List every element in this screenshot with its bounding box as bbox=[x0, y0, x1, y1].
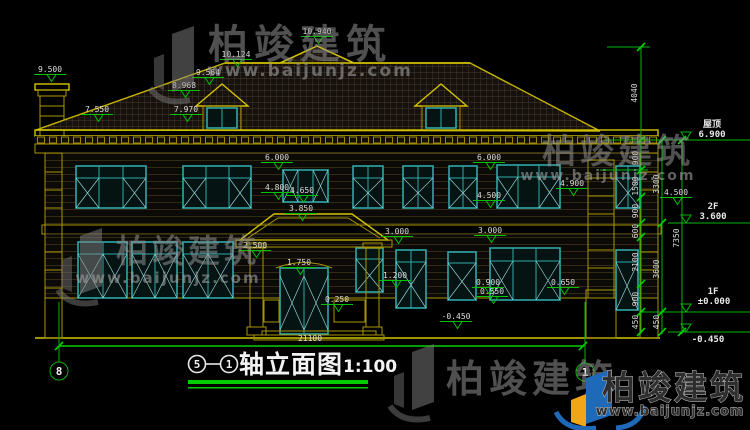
brand-text-bottom-right: 柏竣建筑 bbox=[602, 368, 746, 407]
elev-door-top: 1.750 bbox=[287, 258, 311, 267]
elev-4650: 4.650 bbox=[290, 186, 314, 195]
elev-eave-left: 7.550 bbox=[85, 105, 109, 114]
watermark-url-left: www.baijunjz.com bbox=[75, 269, 260, 287]
dim-600: 600 bbox=[631, 224, 640, 239]
elev-0900: 0.900 bbox=[476, 278, 500, 287]
window-1f-f bbox=[448, 252, 476, 300]
elev-6000-right: 6.000 bbox=[477, 153, 501, 162]
dim-total-width: 21100 bbox=[298, 334, 322, 343]
elev-3000-b: 3.000 bbox=[478, 226, 502, 235]
level-1f-value: ±0.000 bbox=[698, 297, 731, 307]
dim-4040: 4040 bbox=[630, 83, 639, 102]
elevation-marker bbox=[660, 198, 692, 205]
window-2f-d bbox=[353, 166, 383, 208]
dim-900-c: 900 bbox=[631, 292, 640, 307]
dim-900-b: 900 bbox=[631, 204, 640, 219]
elev-porch-roof: 3.850 bbox=[289, 204, 313, 213]
cad-elevation-screenshot: 8 1 9.5007.55010.1249.5648.9687.97010.94… bbox=[0, 0, 750, 430]
elev-4500-mid: 4.500 bbox=[477, 191, 501, 200]
elev-neg0450-left: -0.450 bbox=[442, 312, 471, 321]
title-underline-thin bbox=[188, 387, 368, 389]
level-2f-value: 3.600 bbox=[699, 212, 726, 222]
dim-450-a: 450 bbox=[631, 315, 640, 330]
elevation-drawing: 8 1 9.5007.55010.1249.5648.9687.97010.94… bbox=[0, 0, 750, 430]
watermark-logo-bottom bbox=[390, 344, 434, 420]
level-1f-label: 1F bbox=[708, 287, 719, 297]
elevation-marker bbox=[34, 75, 66, 82]
drawing-scale: 1:100 bbox=[343, 357, 397, 377]
axis-bubble-8-label: 8 bbox=[56, 365, 63, 378]
level-2f-label: 2F bbox=[708, 202, 719, 212]
elev-0650: 0.650 bbox=[551, 278, 575, 287]
level-roof-label: 屋顶 bbox=[703, 119, 721, 130]
dim-3600: 3600 bbox=[652, 259, 661, 278]
window-2f-e bbox=[403, 166, 433, 208]
title-axis-from: 5 bbox=[194, 358, 201, 371]
title-block: 5 1 轴立面图 1:100 bbox=[188, 350, 397, 389]
brand-url-bottom-right: www.baijunjz.com bbox=[596, 404, 745, 419]
elev-0250: 0.250 bbox=[325, 295, 349, 304]
watermark-url-right: www.baijunjz.com bbox=[521, 168, 696, 184]
window-2f-f bbox=[449, 166, 477, 208]
elev-chimney: 9.500 bbox=[38, 65, 62, 74]
elev-dormer-sill: 7.970 bbox=[174, 105, 198, 114]
elev-3000-a: 3.000 bbox=[385, 227, 409, 236]
elev-4500-right: 4.500 bbox=[664, 188, 688, 197]
elevation-marker bbox=[440, 322, 472, 329]
title-underline-thick bbox=[188, 380, 368, 384]
level-roof-value: 6.900 bbox=[698, 130, 725, 140]
watermark-url-top: www.baijunjz.com bbox=[207, 61, 413, 81]
dim-7350: 7350 bbox=[672, 228, 681, 247]
drawing-title: 轴立面图 bbox=[239, 350, 343, 379]
elev-0550: 0.550 bbox=[480, 287, 504, 296]
window-2f-a bbox=[76, 166, 146, 208]
level-base-value: -0.450 bbox=[692, 335, 725, 345]
window-2f-b bbox=[183, 166, 251, 208]
watermark-brand-left: 柏竣建筑 bbox=[116, 232, 260, 270]
watermark-brand-right: 柏竣建筑 bbox=[542, 132, 694, 172]
title-axis-to: 1 bbox=[226, 358, 233, 371]
dim-450-b: 450 bbox=[652, 315, 661, 330]
elev-1200: 1.200 bbox=[383, 271, 407, 280]
dim-2100: 2100 bbox=[631, 252, 640, 271]
entry-door bbox=[276, 263, 332, 335]
elev-6000-left: 6.000 bbox=[265, 153, 289, 162]
elev-4800: 4.800 bbox=[265, 183, 289, 192]
porch-railing-left bbox=[264, 300, 279, 322]
